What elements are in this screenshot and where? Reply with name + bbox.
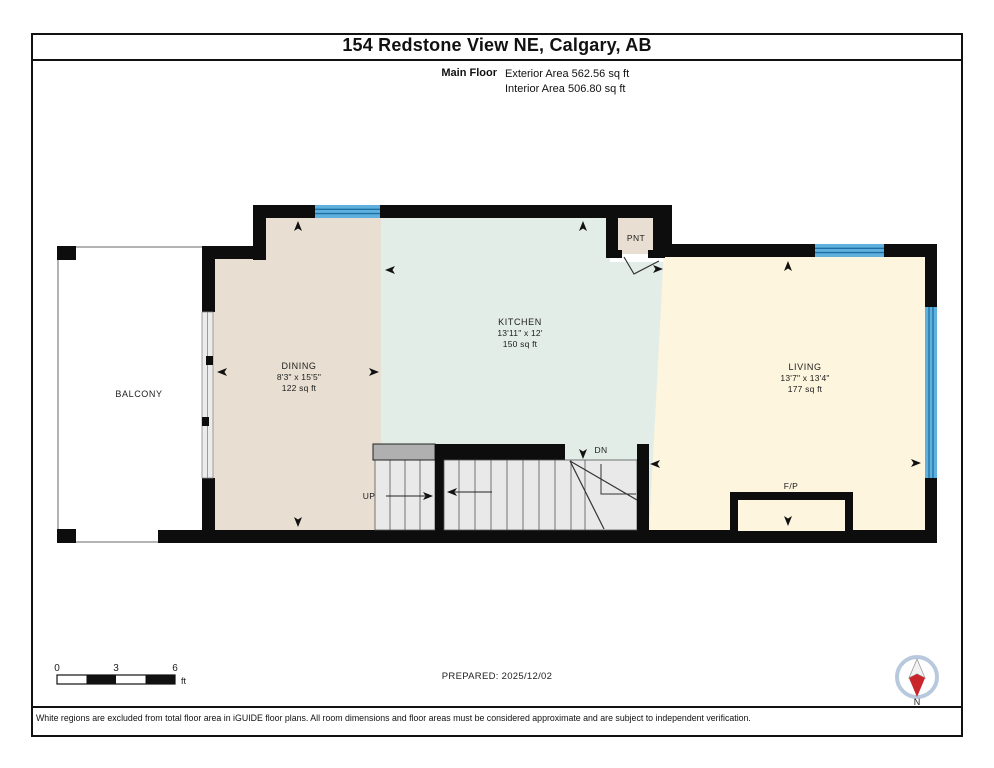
- dining-label: DINING: [281, 361, 316, 371]
- disclaimer-text: White regions are excluded from total fl…: [36, 713, 956, 723]
- stairs-railing: [373, 444, 435, 460]
- living-label: LIVING: [788, 362, 821, 372]
- living-area: 177 sq ft: [788, 384, 823, 394]
- balcony-label: BALCONY: [115, 389, 162, 399]
- pantry-label: PNT: [627, 233, 645, 243]
- window-kitchen-top: [315, 205, 380, 218]
- stairs-dn-treads: [444, 460, 637, 530]
- window-living-top: [815, 244, 884, 257]
- wall-stairs-right: [637, 444, 649, 530]
- compass-icon: N: [897, 657, 937, 707]
- pantry-jamb-left: [606, 250, 622, 258]
- pantry-jamb-right: [648, 250, 665, 258]
- fireplace-label: F/P: [784, 481, 798, 491]
- stairs-up-label: UP: [363, 491, 376, 501]
- floorplan-page: 154 Redstone View NE, Calgary, AB Main F…: [0, 0, 994, 768]
- floorplan-drawing: BALCONY DINING 8'3" x 15'5" 122 sq ft KI…: [0, 0, 994, 768]
- stairs-dn-label: DN: [594, 445, 607, 455]
- fireplace: [730, 492, 853, 531]
- living-dims: 13'7" x 13'4": [780, 373, 829, 383]
- dining-dims: 8'3" x 15'5": [277, 372, 321, 382]
- balcony-post-bottom: [57, 529, 76, 543]
- kitchen-dims: 13'11" x 12': [497, 328, 543, 338]
- balcony-post-top: [57, 246, 76, 260]
- stairs-divider-wall: [435, 444, 444, 530]
- balcony-sliding-door: [202, 312, 213, 478]
- dining-area: 122 sq ft: [282, 383, 317, 393]
- prepared-date: PREPARED: 2025/12/02: [0, 671, 994, 682]
- wall-bottom: [158, 530, 937, 543]
- kitchen-label: KITCHEN: [498, 317, 542, 327]
- kitchen-area: 150 sq ft: [503, 339, 538, 349]
- wall-top-living: [666, 244, 937, 257]
- compass-north-label: N: [914, 697, 921, 707]
- window-living-right: [925, 307, 937, 478]
- wall-dining-left-upper: [202, 246, 215, 312]
- stairs-dn-top-wall: [444, 444, 565, 460]
